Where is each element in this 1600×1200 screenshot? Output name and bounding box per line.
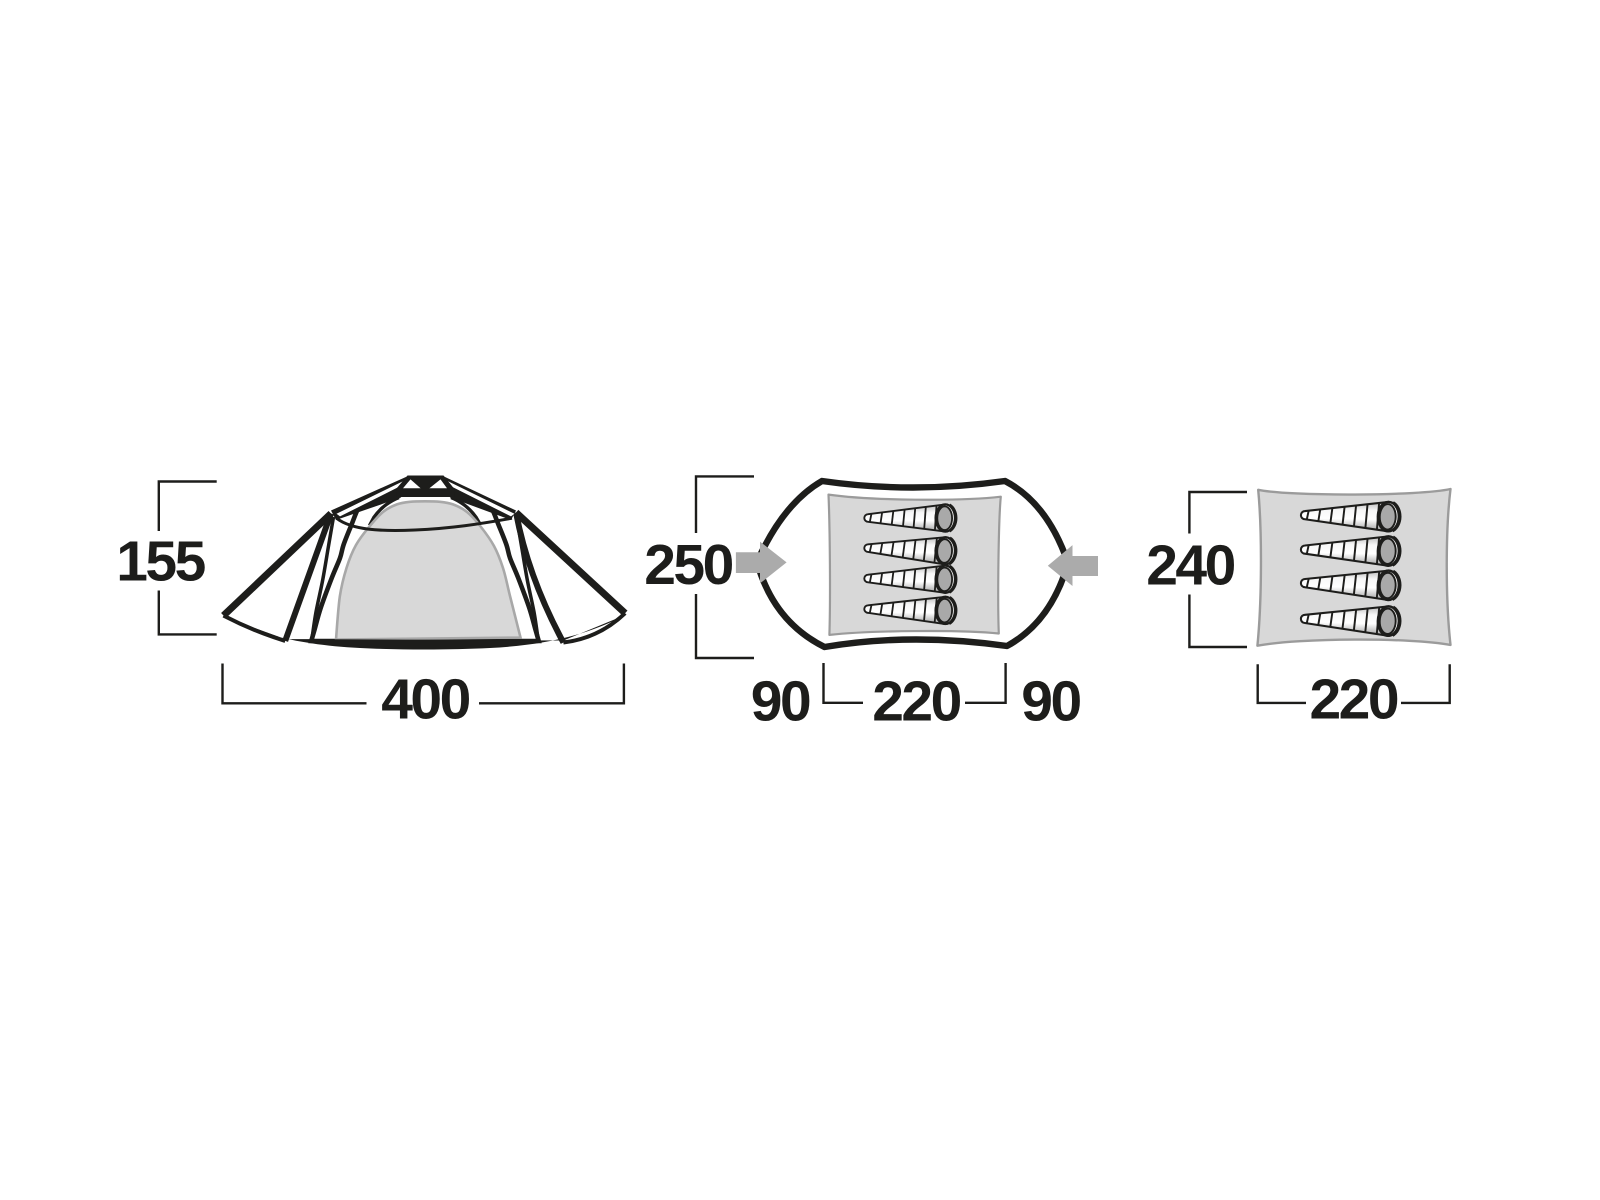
svg-text:155: 155 xyxy=(116,530,205,594)
svg-text:90: 90 xyxy=(1021,670,1080,734)
svg-text:250: 250 xyxy=(644,533,732,597)
svg-text:240: 240 xyxy=(1146,534,1234,598)
svg-text:400: 400 xyxy=(381,668,469,732)
svg-text:220: 220 xyxy=(1309,668,1397,732)
svg-text:220: 220 xyxy=(872,670,960,734)
svg-text:90: 90 xyxy=(751,670,810,734)
